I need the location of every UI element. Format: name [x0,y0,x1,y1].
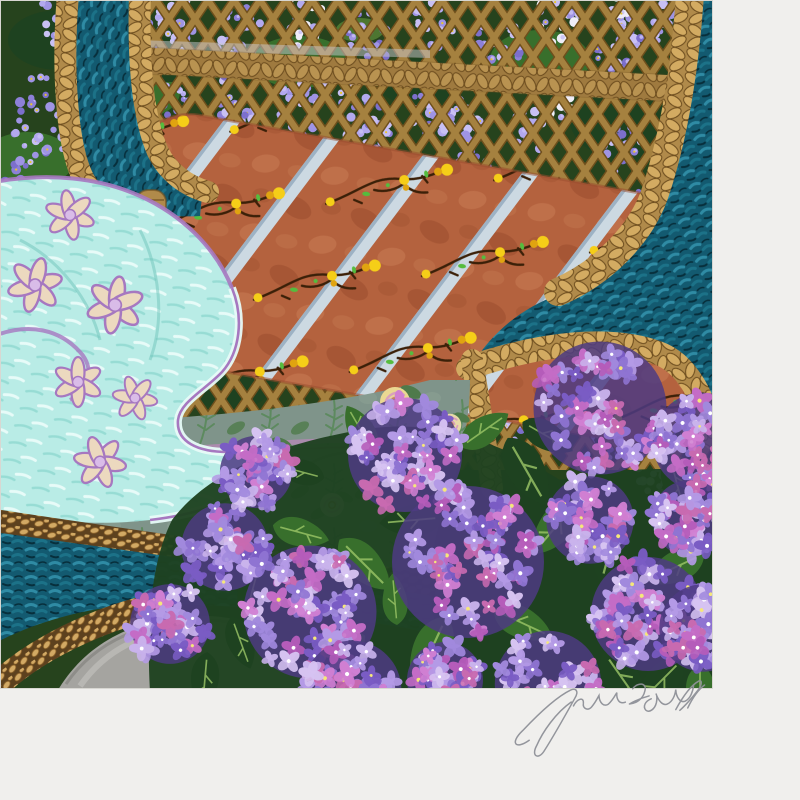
artwork-canvas: John Powell [0,0,800,800]
painting [0,0,800,746]
art-print-photo: John Powell [0,0,800,800]
